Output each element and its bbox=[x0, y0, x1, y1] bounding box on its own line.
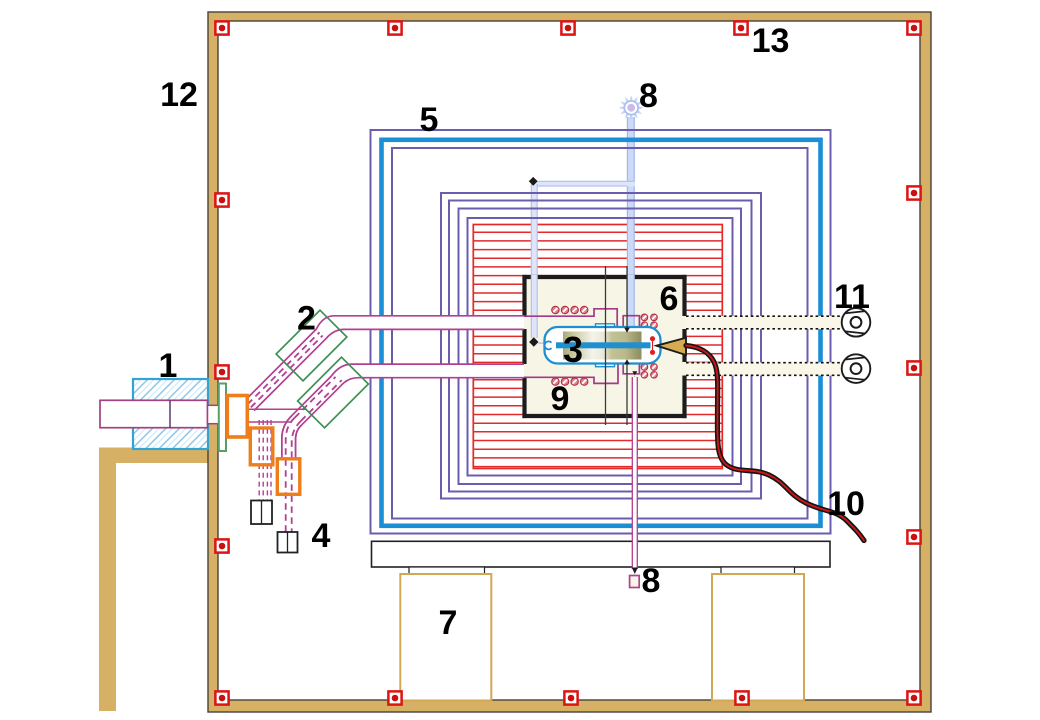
svg-text:8: 8 bbox=[639, 77, 658, 115]
svg-text:5: 5 bbox=[420, 101, 439, 139]
svg-text:8: 8 bbox=[642, 562, 661, 600]
svg-text:10: 10 bbox=[827, 485, 865, 523]
svg-text:1: 1 bbox=[159, 347, 178, 385]
svg-text:2: 2 bbox=[297, 300, 316, 338]
svg-text:6: 6 bbox=[660, 280, 679, 318]
svg-text:3: 3 bbox=[563, 329, 583, 370]
svg-text:11: 11 bbox=[834, 278, 870, 316]
svg-text:7: 7 bbox=[439, 604, 458, 642]
svg-text:13: 13 bbox=[752, 22, 790, 60]
svg-text:12: 12 bbox=[160, 76, 198, 114]
svg-text:4: 4 bbox=[312, 517, 331, 555]
svg-text:9: 9 bbox=[551, 380, 570, 418]
